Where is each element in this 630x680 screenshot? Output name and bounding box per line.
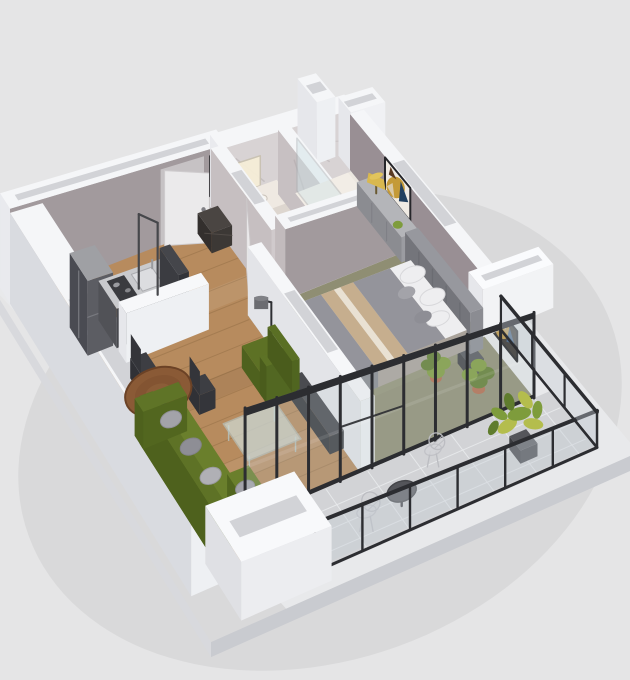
floor-plan-render (0, 0, 630, 680)
armchair-arm-front (292, 358, 300, 392)
entry-wall-side (0, 193, 10, 303)
top-wall-stub2-front (317, 97, 336, 164)
floor-plan-stage (0, 0, 630, 680)
floor-lamp-shade-top (254, 296, 268, 301)
dresser-plant (393, 221, 403, 229)
